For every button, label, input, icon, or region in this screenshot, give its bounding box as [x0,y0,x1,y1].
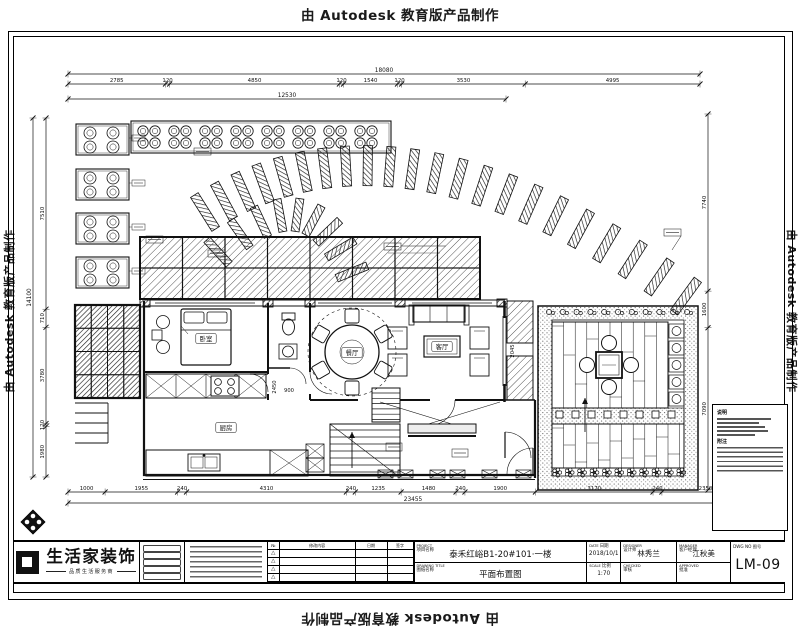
project-row: PROJECT 项目名称 泰禾红峪B1-20#101·一楼 [415,542,587,562]
revision-marker: △ [268,558,280,566]
notes-greek-line [717,434,755,436]
svg-text:240: 240 [652,486,663,492]
approver-label-cn: 批准 [679,568,688,573]
manager-label-cn: 客户经理 [679,548,697,553]
revision-marker: △ [268,566,280,574]
revision-cell [388,550,414,558]
svg-text:7740: 7740 [702,195,708,209]
svg-text:120: 120 [336,78,347,84]
signature-line [143,545,181,552]
manager-row: MANAGER 客户经理 江秋美 [677,542,730,562]
svg-text:4995: 4995 [606,78,620,84]
project-label-en: PROJECT [417,544,433,548]
svg-text:120: 120 [40,419,46,430]
revision-marker: △ [268,574,280,582]
svg-text:14100: 14100 [27,288,33,307]
svg-text:7090: 7090 [702,401,708,415]
notes-greek-line [717,430,768,432]
notes-box: 说明 附注 [712,404,788,531]
revision-cell [280,558,356,566]
svg-text:120: 120 [394,78,405,84]
scale-label-cn: 比例 [602,564,611,569]
checker-row: CHECKED 审核 [621,562,676,583]
designer-label-cn: 设计师 [623,548,636,553]
revision-cell [280,574,356,582]
svg-text:3530: 3530 [457,78,471,84]
revision-cell [388,566,414,574]
svg-text:1235: 1235 [371,486,385,492]
svg-text:240: 240 [455,486,466,492]
signature-line [143,559,181,566]
revision-marker: △ [268,550,280,558]
revision-cell [280,550,356,558]
project-cell: PROJECT 项目名称 泰禾红峪B1-20#101·一楼 DRAWING TI… [415,542,588,582]
revision-cell [388,574,414,582]
approver-row: APPROVED 批准 [677,562,730,583]
designer-label-en: DESIGNER [623,544,642,548]
svg-text:1000: 1000 [80,486,94,492]
svg-text:900: 900 [284,388,294,394]
svg-text:卧室: 卧室 [200,334,213,343]
date-row: DATE 日期 2018/10/1 [587,542,620,562]
svg-text:3780: 3780 [40,368,46,382]
drawing-label-cn: 图纸名称 [417,568,435,573]
revision-cell: 签字 [388,542,414,550]
svg-text:2350: 2350 [699,486,713,492]
company-logo: 生活家装饰 品质生活服务商 [14,542,140,582]
revision-cell [280,566,356,574]
signature-line [143,552,181,559]
dwg-number-label: DWG NO 图号 [733,544,761,550]
date-scale-cell: DATE 日期 2018/10/1 SCALE 比例 1:70 [587,542,621,582]
svg-text:23455: 23455 [404,497,423,503]
drawing-sheet: { "banner": { "text": "由 Autodesk 教育版产品制… [0,0,800,640]
signature-line [143,566,181,573]
svg-text:餐厅: 餐厅 [346,348,359,357]
date-label-cn: 日期 [600,544,609,549]
revision-cell: 修改内容 [280,542,356,550]
svg-text:1600: 1600 [702,302,708,316]
company-logo-text: 生活家装饰 品质生活服务商 [46,549,136,575]
date-label: DATE 日期 [589,544,608,550]
house-interior [140,299,535,480]
dwg-number-cell: DWG NO 图号 LM-09 [731,542,785,582]
svg-text:4310: 4310 [260,486,274,492]
company-name: 生活家装饰 [46,549,136,566]
drawing-title-label: DRAWING TITLE 图纸名称 [417,564,445,574]
revision-cell [356,574,388,582]
svg-text:1900: 1900 [493,486,507,492]
approver-label: APPROVED 批准 [679,564,699,574]
project-label: PROJECT 项目名称 [417,544,435,554]
revision-cell [356,550,388,558]
side-patio [75,305,140,443]
project-label-cn: 项目名称 [417,548,435,553]
manager-label-en: MANAGER [679,544,697,548]
svg-text:2450: 2450 [272,380,278,393]
signature-fields [140,542,185,582]
designer-cell: DESIGNER 设计师 林秀兰 CHECKED 审核 [621,542,677,582]
manager-cell: MANAGER 客户经理 江秋美 APPROVED 批准 [677,542,731,582]
drawing-title-row: DRAWING TITLE 图纸名称 平面布置图 [415,562,587,583]
svg-text:3170: 3170 [587,486,601,492]
scale-label-en: SCALE [589,564,601,568]
notes-greek-line [717,418,771,420]
svg-text:4850: 4850 [248,78,262,84]
room-labels: 卧室餐厅客厅厨房90020452450 [196,334,516,433]
scale-row: SCALE 比例 1:70 [587,562,620,583]
notes-greek-line [717,422,759,424]
drawing-number: LM-09 [731,557,785,573]
svg-text:12530: 12530 [278,93,297,99]
svg-text:7510: 7510 [40,206,46,220]
svg-text:1540: 1540 [364,78,378,84]
svg-text:客厅: 客厅 [436,342,449,351]
date-label-en: DATE [589,544,598,548]
svg-text:120: 120 [162,78,173,84]
notes-title: 说明 [717,409,783,416]
company-logo-icon [16,551,39,574]
svg-text:2045: 2045 [510,344,516,357]
revision-cell [356,558,388,566]
revision-cell [356,566,388,574]
svg-text:710: 710 [40,313,46,324]
svg-text:1480: 1480 [422,486,436,492]
scale-label: SCALE 比例 [589,564,610,570]
notes-subtitle: 附注 [717,438,783,445]
revision-cell: 日期 [356,542,388,550]
svg-text:18080: 18080 [375,68,394,74]
notes-greek-line [717,426,765,428]
title-block: 生活家装饰 品质生活服务商 №修改内容日期签字△△△△ PROJECT 项目名称… [14,540,785,584]
notes-greek-paragraph [717,447,783,474]
designer-label: DESIGNER 设计师 [623,544,642,554]
svg-text:2785: 2785 [110,78,124,84]
checker-label: CHECKED 审核 [623,564,640,574]
revision-cell [388,558,414,566]
checker-label-cn: 审核 [623,568,632,573]
manager-label: MANAGER 客户经理 [679,544,697,554]
project-name: 泰禾红峪B1-20#101·一楼 [415,544,587,560]
revision-cell: № [268,542,280,550]
svg-text:240: 240 [346,486,357,492]
svg-text:1955: 1955 [134,486,148,492]
right-courtyard [538,306,698,490]
svg-text:厨房: 厨房 [220,423,233,432]
north-symbol [21,510,45,534]
terrace-paving [140,237,480,299]
svg-text:1980: 1980 [40,444,46,458]
revision-table: №修改内容日期签字△△△△ [268,542,415,582]
company-tagline: 品质生活服务商 [46,568,136,575]
titleblock-notes-greeked [190,546,262,578]
signature-line [143,573,181,580]
svg-text:240: 240 [177,486,188,492]
titleblock-notes [185,542,268,582]
designer-row: DESIGNER 设计师 林秀兰 [621,542,676,562]
